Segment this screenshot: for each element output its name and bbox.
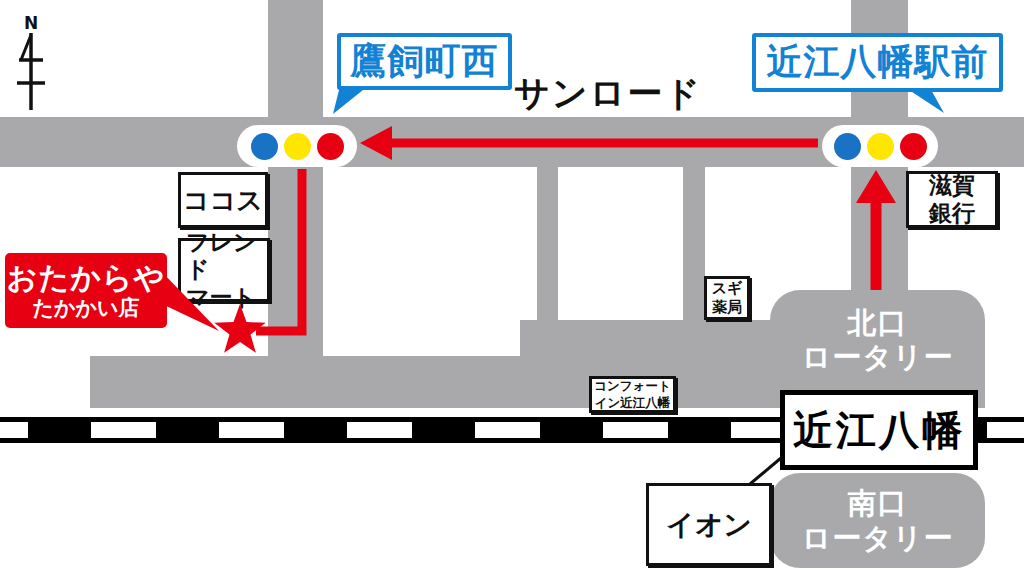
store-name-label: おたからや: [7, 262, 166, 294]
north-rotary: 北口 ロータリー: [770, 290, 985, 390]
landmark-comfort-inn-label: コンフォート イン近江八幡: [594, 378, 670, 411]
svg-text:N: N: [24, 13, 38, 33]
landmark-sugi-pharmacy-label: スギ 薬局: [712, 279, 743, 317]
landmark-shiga-bank-label: 滋賀 銀行: [929, 172, 975, 227]
landmark-friend-mart: フレンド マート: [178, 238, 270, 302]
station-name-label: 近江八幡: [793, 403, 965, 458]
access-map: 北口 ロータリー 南口 ロータリー ココス フレンド マート スギ 薬局 滋賀 …: [0, 0, 1024, 581]
landmark-comfort-inn: コンフォート イン近江八幡: [589, 376, 676, 413]
store-branch-label: たかかい店: [33, 297, 140, 319]
landmark-aeon-label: イオン: [666, 506, 752, 544]
south-rotary-label: 南口 ロータリー: [801, 486, 953, 554]
signal-yellow-light-icon: [867, 133, 894, 160]
signal-east-icon: [822, 125, 938, 167]
landmark-aeon: イオン: [646, 483, 772, 566]
south-rotary: 南口 ロータリー: [770, 473, 985, 568]
signal-east-bubble: 近江八幡駅前: [752, 33, 1003, 92]
signal-red-light-icon: [900, 133, 927, 160]
signal-west-icon: [237, 125, 357, 167]
landmark-shiga-bank: 滋賀 銀行: [906, 171, 998, 228]
signal-west-bubble: 鷹飼町西: [337, 33, 512, 90]
landmark-cocos-label: ココス: [183, 183, 263, 218]
store-callout: おたからや たかかい店: [5, 253, 167, 328]
north-compass-icon: N: [17, 13, 45, 110]
signal-yellow-light-icon: [284, 133, 311, 160]
station-omihachiman: 近江八幡: [780, 390, 978, 470]
signal-west-label: 鷹飼町西: [351, 37, 499, 86]
signal-red-light-icon: [317, 133, 344, 160]
bubble-tail-west: [333, 86, 368, 114]
landmark-sugi-pharmacy: スギ 薬局: [704, 276, 750, 320]
aeon-connector-line: [750, 458, 781, 484]
north-rotary-label: 北口 ロータリー: [801, 306, 953, 374]
road-west-vertical: [268, 0, 323, 408]
landmark-cocos: ココス: [178, 172, 268, 228]
landmark-friend-mart-label: フレンド マート: [186, 229, 267, 312]
signal-blue-light-icon: [834, 133, 861, 160]
street-name-label: サンロード: [514, 70, 702, 117]
signal-east-label: 近江八幡駅前: [767, 38, 989, 87]
signal-blue-light-icon: [251, 133, 278, 160]
